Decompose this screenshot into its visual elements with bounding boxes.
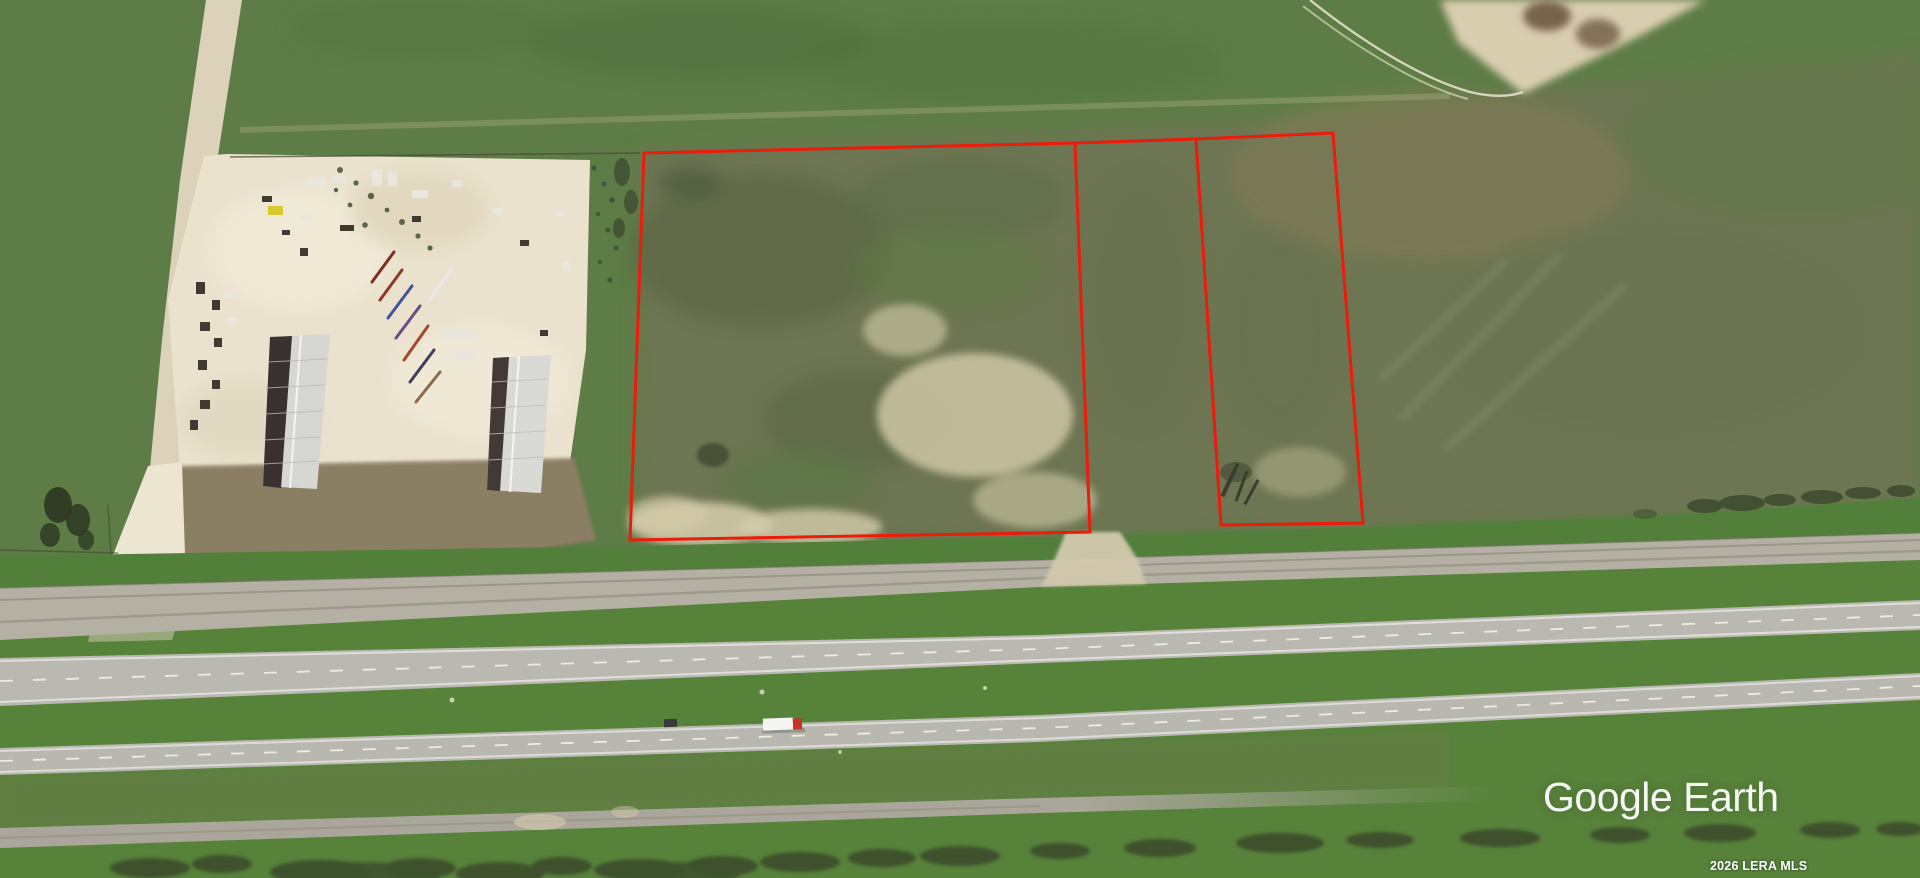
aerial-map-view: Google Earth 2026 LERA MLS <box>0 0 1920 878</box>
mls-attribution: 2026 LERA MLS <box>1710 859 1807 873</box>
semi-truck <box>762 717 805 733</box>
satellite-basemap <box>0 0 1920 878</box>
warehouse-building-2 <box>487 355 551 493</box>
yellow-equipment <box>268 206 283 215</box>
dark-vehicle <box>664 719 677 727</box>
google-earth-watermark: Google Earth <box>1543 774 1823 821</box>
